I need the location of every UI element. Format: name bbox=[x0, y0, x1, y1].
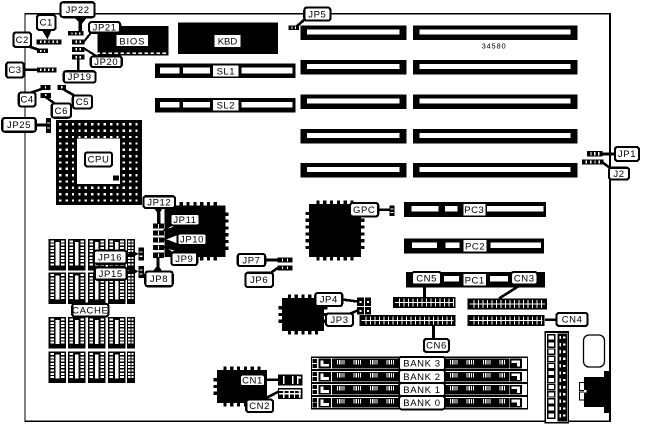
svg-text:JP12: JP12 bbox=[147, 197, 171, 208]
svg-text:JP3: JP3 bbox=[330, 315, 348, 326]
svg-text:34580: 34580 bbox=[482, 42, 507, 51]
svg-text:BANK 1: BANK 1 bbox=[403, 385, 440, 396]
svg-text:JP22: JP22 bbox=[66, 5, 90, 16]
svg-text:CPU: CPU bbox=[88, 155, 110, 166]
svg-text:JP21: JP21 bbox=[93, 23, 117, 34]
svg-text:PC2: PC2 bbox=[465, 241, 485, 252]
svg-text:CN3: CN3 bbox=[514, 274, 535, 285]
svg-text:JP25: JP25 bbox=[7, 120, 31, 131]
svg-text:J2: J2 bbox=[613, 169, 624, 180]
svg-text:JP16: JP16 bbox=[98, 252, 122, 263]
svg-text:CN5: CN5 bbox=[416, 274, 437, 285]
svg-text:C1: C1 bbox=[40, 18, 53, 29]
svg-text:BANK 2: BANK 2 bbox=[403, 372, 440, 383]
svg-text:C4: C4 bbox=[20, 95, 33, 106]
svg-text:KBD: KBD bbox=[218, 37, 238, 48]
svg-text:BANK 3: BANK 3 bbox=[403, 359, 440, 370]
svg-text:PC1: PC1 bbox=[465, 275, 485, 286]
svg-text:JP7: JP7 bbox=[242, 255, 260, 266]
svg-text:JP1: JP1 bbox=[618, 149, 636, 160]
svg-text:JP6: JP6 bbox=[250, 275, 268, 286]
svg-text:BANK 0: BANK 0 bbox=[403, 398, 440, 409]
svg-text:C6: C6 bbox=[55, 106, 68, 117]
svg-text:JP15: JP15 bbox=[99, 269, 123, 280]
svg-text:GPC: GPC bbox=[353, 205, 375, 216]
svg-text:CN6: CN6 bbox=[426, 341, 447, 352]
svg-text:CN4: CN4 bbox=[562, 315, 583, 326]
svg-text:JP11: JP11 bbox=[173, 215, 196, 226]
svg-text:PC3: PC3 bbox=[464, 205, 484, 216]
svg-text:C5: C5 bbox=[76, 97, 89, 108]
svg-text:C3: C3 bbox=[8, 65, 21, 76]
svg-text:JP9: JP9 bbox=[175, 254, 193, 265]
svg-text:JP20: JP20 bbox=[94, 57, 118, 68]
svg-text:CACHE: CACHE bbox=[72, 305, 108, 316]
svg-text:JP19: JP19 bbox=[68, 72, 92, 83]
svg-text:JP5: JP5 bbox=[308, 9, 326, 20]
svg-text:BIOS: BIOS bbox=[119, 36, 145, 47]
svg-text:C2: C2 bbox=[16, 35, 29, 46]
svg-text:JP4: JP4 bbox=[320, 295, 338, 306]
svg-text:JP8: JP8 bbox=[150, 274, 168, 285]
svg-text:SL2: SL2 bbox=[217, 101, 235, 112]
svg-text:JP10: JP10 bbox=[180, 235, 204, 246]
svg-text:CN1: CN1 bbox=[242, 376, 263, 387]
svg-text:SL1: SL1 bbox=[217, 66, 235, 77]
svg-text:CN2: CN2 bbox=[249, 401, 270, 412]
